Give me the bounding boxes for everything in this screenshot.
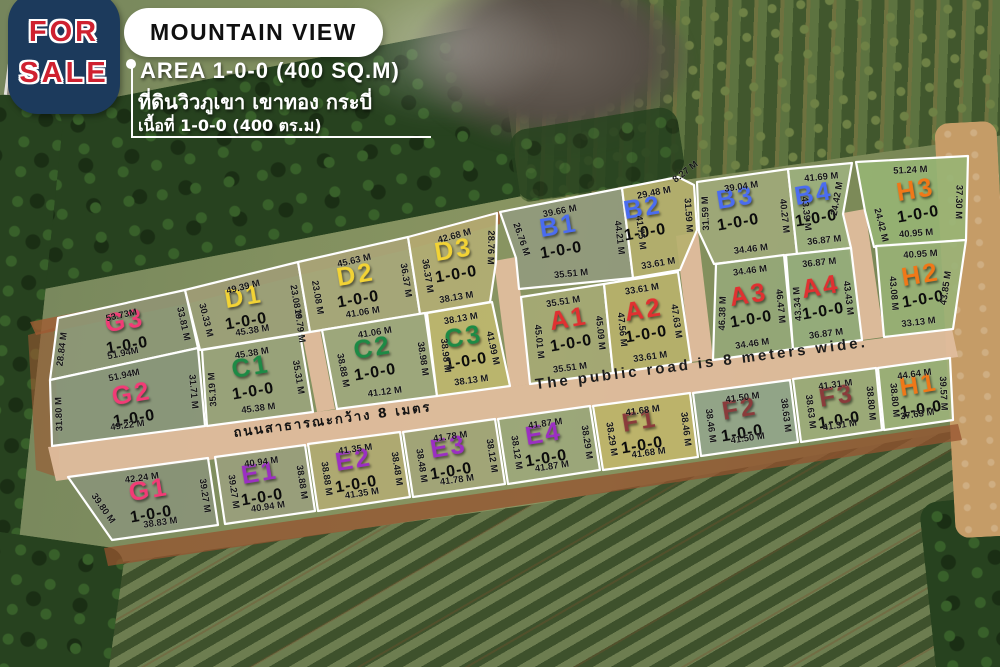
- area-line: AREA 1-0-0 (400 SQ.M): [140, 58, 400, 84]
- plot-E3: E31-0-041.78 M38.12 M41.78 M38.48 M: [403, 419, 505, 497]
- plot-A4: A41-0-036.87 M43.43 M36.87 M43.34 M: [786, 248, 862, 349]
- plot-C2: C21-0-041.06 M38.98 M41.12 M38.88 M: [322, 313, 437, 409]
- plot-B4: B41-0-041.69 M24.42 M36.87 M43.39 M: [788, 163, 852, 254]
- thai-area: เนื้อที่ 1-0-0 (400 ตร.ม): [138, 114, 322, 139]
- dimension-label: 28.76 M: [485, 230, 497, 265]
- for-sale-badge: FOR SALE: [8, 0, 120, 114]
- dimension-label: 46.38 M: [717, 296, 729, 331]
- plot-F2: F21-0-041.50 M38.63 M41.50 M38.46 M: [693, 380, 798, 456]
- plot-id-label: A4: [799, 268, 842, 304]
- plot-id-label: H3: [894, 171, 937, 207]
- plot-F1: F11-0-041.68 M38.46 M41.68 M38.29 M: [593, 393, 698, 470]
- plot-id-label: A3: [727, 276, 770, 312]
- dimension-label: 31.80 M: [53, 397, 65, 432]
- flyer: G31-0-053.73M33.81 M51.94M28.84 MG21-0-0…: [0, 0, 1000, 667]
- plot-B3: B31-0-039.04 M40.27 M34.46 M31.59 M: [697, 169, 797, 264]
- plot-E2: E21-0-041.35 M38.48 M41.35 M38.88 M: [308, 432, 410, 511]
- plot-E1: E11-0-040.94 M38.88 M40.94 M39.27 M: [215, 445, 315, 524]
- plot-F3: F31-0-041.31 M38.80 M41.31 M38.63 M: [793, 368, 882, 442]
- dimension-label: 31.59 M: [700, 196, 712, 231]
- plot-id-label: H2: [899, 256, 942, 292]
- plot-C3: C31-0-038.13 M41.99 M38.13 M38.98 M: [427, 302, 510, 396]
- plot-H1: H11-0-044.64 M39.57 M37.63 M38.80 M: [878, 358, 953, 430]
- project-title: MOUNTAIN VIEW: [124, 8, 383, 57]
- plot-H3: H31-0-051.24 M37.30 M40.95 M24.42 M: [856, 156, 968, 247]
- plot-H2: H21-0-040.95 M43.85 M33.13 M43.08 M: [876, 240, 966, 337]
- dimension-label: 40.95 M: [903, 248, 938, 261]
- plot-E4: E41-0-041.87 M38.29 M41.87 M38.12 M: [498, 406, 600, 484]
- dimension-label: 51.24 M: [893, 164, 928, 177]
- plot-B1: B11-0-039.66 M44.21 M35.51 M26.76 M: [500, 188, 633, 289]
- for-sale-line2: SALE: [19, 57, 108, 90]
- for-sale-line1: FOR: [29, 16, 99, 49]
- dimension-label: 39.57 M: [937, 376, 950, 411]
- plot-D3: D31-0-042.68 M28.76 M38.13 M36.37 M: [408, 213, 497, 314]
- dimension-label: 37.30 M: [953, 185, 965, 220]
- dimension-label: 31.59 M: [681, 198, 694, 233]
- dimension-label: 35.19 M: [206, 372, 219, 407]
- plot-C1: C11-0-045.38 M35.31 M45.38 M35.19 M: [202, 334, 313, 426]
- frame-line-vertical: [131, 64, 133, 138]
